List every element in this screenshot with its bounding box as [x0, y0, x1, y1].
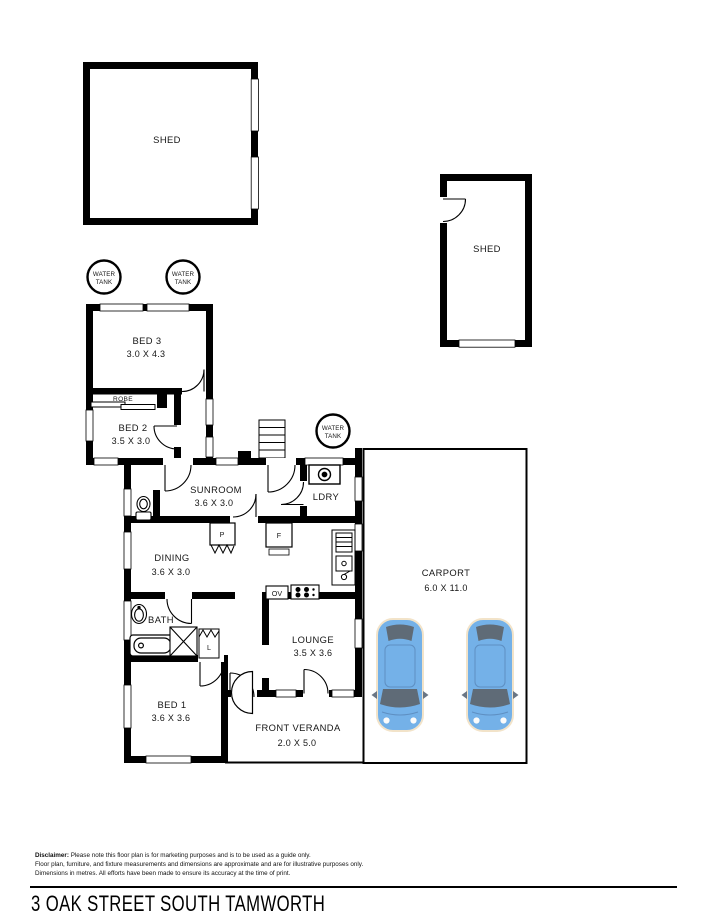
pantry-symbol: P: [210, 523, 235, 553]
window: [206, 399, 213, 425]
sunroom-dims: 3.6 X 3.0: [195, 498, 234, 508]
bed1-label: BED 1: [157, 699, 186, 710]
back-door: [268, 465, 295, 492]
window: [355, 524, 362, 551]
window: [459, 340, 515, 347]
water-tank-1: WATER TANK: [88, 261, 121, 294]
veranda-dims: 2.0 X 5.0: [278, 738, 317, 748]
bed1-dims: 3.6 X 3.6: [152, 713, 191, 723]
window: [124, 489, 131, 516]
window: [251, 79, 258, 131]
wall: [221, 662, 228, 763]
ldry-label: LDRY: [313, 491, 340, 502]
water-tank-label: TANK: [175, 279, 192, 286]
door-opening: [440, 197, 448, 223]
water-tank-label: WATER: [322, 425, 345, 432]
car-2: [462, 619, 519, 731]
window: [206, 437, 213, 457]
window: [124, 532, 131, 569]
oven-symbol: OV: [266, 586, 288, 599]
fridge-symbol: F: [266, 523, 292, 555]
bath-sink: [132, 605, 147, 624]
disclaimer-line-2: Floor plan, furniture, and fixture measu…: [35, 860, 655, 869]
window: [94, 458, 118, 465]
divider-line: [30, 886, 677, 888]
disclaimer-line-1: Disclaimer: Please note this floor plan …: [35, 851, 655, 860]
bed3-label: BED 3: [132, 335, 161, 346]
water-tank-2: WATER TANK: [167, 261, 200, 294]
veranda-label: FRONT VERANDA: [255, 722, 341, 733]
shed1-label: SHED: [153, 134, 181, 145]
floor-plan-page: WATER TANK WATER TANK WATER TANK: [0, 0, 707, 921]
window: [251, 157, 258, 209]
kitchen-door: [233, 494, 256, 517]
water-tank-label: TANK: [96, 279, 113, 286]
window: [100, 304, 143, 311]
bed2-door: [154, 426, 177, 449]
sunroom-label: SUNROOM: [190, 484, 242, 495]
door-opening: [303, 690, 329, 697]
stove: [291, 585, 319, 599]
washing-machine: [309, 465, 340, 484]
bed3-dims: 3.0 X 4.3: [127, 349, 166, 359]
oven-label: OV: [272, 589, 283, 598]
wall: [153, 490, 160, 516]
window: [332, 690, 354, 697]
lounge-veranda-door: [304, 670, 328, 694]
shed-2: [440, 178, 529, 348]
window: [305, 458, 343, 465]
shower: [170, 627, 197, 656]
water-tank-label: WATER: [93, 271, 116, 278]
door-opening: [163, 458, 193, 465]
floor-plan-svg: WATER TANK WATER TANK WATER TANK: [0, 0, 707, 921]
bed1-door: [200, 662, 224, 686]
dining-label: DINING: [154, 552, 189, 563]
dining-dims: 3.6 X 3.0: [152, 567, 191, 577]
door-opening: [235, 592, 262, 599]
toilet: [136, 497, 151, 521]
water-tank-label: TANK: [325, 433, 342, 440]
robe-sliding-doors: [91, 402, 155, 410]
kitchen-bench: [332, 530, 355, 585]
window: [276, 690, 296, 697]
entry-step-semicircle: [232, 672, 253, 714]
pantry-label: P: [220, 530, 225, 539]
back-steps: [259, 420, 285, 458]
robe-label: ROBE: [113, 396, 133, 403]
shed2-label: SHED: [473, 243, 501, 254]
bed2-dims: 3.5 X 3.0: [112, 436, 151, 446]
carport-dims: 6.0 X 11.0: [424, 583, 467, 593]
disclaimer-label: Disclaimer:: [35, 852, 69, 859]
wall: [86, 388, 182, 395]
linen-label: L: [207, 643, 211, 652]
door-opening: [262, 645, 269, 678]
window: [216, 458, 238, 465]
lounge-label: LOUNGE: [292, 634, 334, 645]
disclaimer-text: Please note this floor plan is for marke…: [69, 852, 311, 859]
wall: [238, 451, 251, 465]
door-opening: [165, 592, 192, 599]
water-tank-label: WATER: [172, 271, 195, 278]
disclaimer-line-3: Dimensions in metres. All efforts have b…: [35, 869, 655, 878]
water-tank-3: WATER TANK: [317, 415, 350, 448]
carport-label: CARPORT: [422, 567, 470, 578]
car-1: [372, 619, 429, 731]
window: [124, 685, 131, 728]
window: [146, 756, 191, 763]
window: [124, 601, 131, 640]
fridge-label: F: [277, 531, 282, 540]
door-opening: [266, 458, 296, 465]
window: [355, 477, 362, 501]
window: [86, 410, 93, 441]
wc-door: [165, 465, 191, 491]
lounge-dims: 3.5 X 3.6: [294, 648, 333, 658]
door-opening: [174, 425, 181, 447]
bed2-label: BED 2: [118, 422, 147, 433]
linen-symbol: L: [199, 629, 219, 658]
page-title: 3 OAK STREET SOUTH TAMWORTH: [31, 891, 325, 917]
disclaimer: Disclaimer: Please note this floor plan …: [35, 851, 655, 879]
shed-2-walls: [444, 178, 529, 344]
wall: [157, 394, 167, 408]
bath-label: BATH: [148, 614, 174, 625]
window: [147, 304, 189, 311]
bathtub: [130, 635, 174, 656]
window: [355, 619, 362, 648]
